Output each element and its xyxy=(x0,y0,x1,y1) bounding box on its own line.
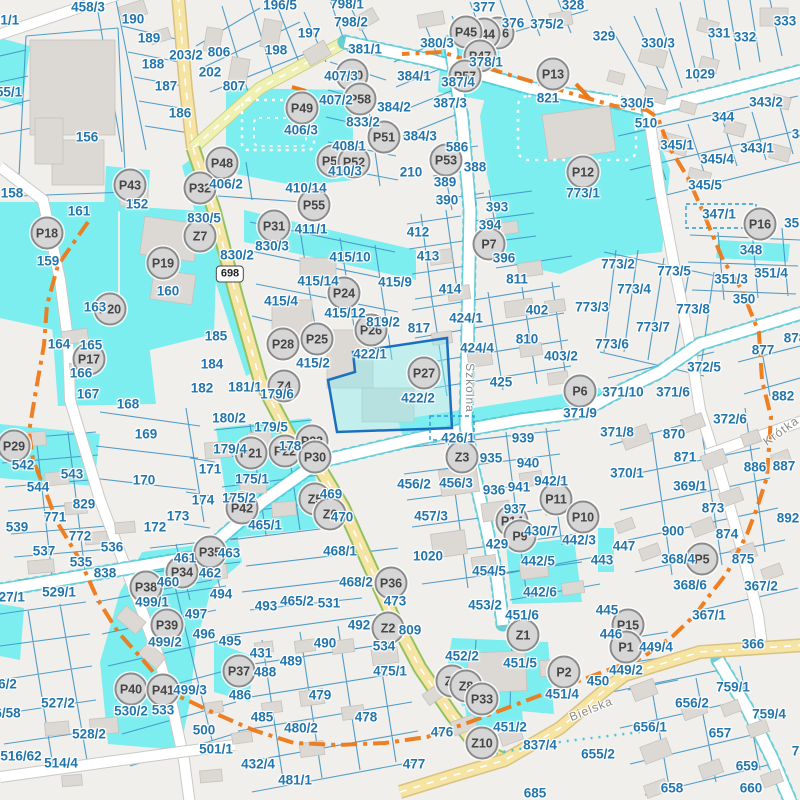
map-marker-p29[interactable]: P29 xyxy=(0,430,31,463)
marker-layer: P46P44P45P47P57P50P49P58P51P56P54P52P53P… xyxy=(0,0,800,800)
map-marker-p32[interactable]: P32 xyxy=(184,172,217,205)
map-marker-p49[interactable]: P49 xyxy=(286,92,319,125)
map-marker-p57[interactable]: P57 xyxy=(449,60,482,93)
map-marker-p51[interactable]: P51 xyxy=(368,121,401,154)
map-marker-p16[interactable]: P16 xyxy=(744,208,777,241)
map-viewport[interactable]: P46P44P45P47P57P50P49P58P51P56P54P52P53P… xyxy=(0,0,800,800)
map-marker-z10[interactable]: Z10 xyxy=(466,727,499,760)
map-marker-p13[interactable]: P13 xyxy=(537,58,570,91)
map-marker-p38[interactable]: P38 xyxy=(130,571,163,604)
map-marker-p1[interactable]: P1 xyxy=(610,631,643,664)
map-marker-z1[interactable]: Z1 xyxy=(507,619,540,652)
map-marker-z2[interactable]: Z2 xyxy=(372,612,405,645)
map-marker-p7[interactable]: P7 xyxy=(473,228,506,261)
map-marker-p43[interactable]: P43 xyxy=(114,169,147,202)
map-marker-p25[interactable]: P25 xyxy=(301,323,334,356)
map-marker-p34[interactable]: P34 xyxy=(166,556,199,589)
map-marker-p58[interactable]: P58 xyxy=(344,83,377,116)
map-marker-p33[interactable]: P33 xyxy=(466,683,499,716)
map-marker-p52[interactable]: P52 xyxy=(338,146,371,179)
route-shield: 698 xyxy=(216,266,244,283)
map-marker-z6[interactable]: Z6 xyxy=(314,498,347,531)
map-marker-p2[interactable]: P2 xyxy=(548,656,581,689)
map-marker-p39[interactable]: P39 xyxy=(151,609,184,642)
map-marker-p35[interactable]: P35 xyxy=(194,536,227,569)
map-marker-p19[interactable]: P19 xyxy=(147,247,180,280)
map-marker-p10[interactable]: P10 xyxy=(567,501,600,534)
map-marker-z3[interactable]: Z3 xyxy=(446,441,479,474)
map-marker-z7[interactable]: Z7 xyxy=(184,220,217,253)
map-marker-p37[interactable]: P37 xyxy=(223,655,256,688)
map-marker-z4[interactable]: Z4 xyxy=(268,370,301,403)
map-marker-p20[interactable]: P20 xyxy=(94,293,127,326)
map-marker-p18[interactable]: P18 xyxy=(31,217,64,250)
map-marker-p55[interactable]: P55 xyxy=(298,189,331,222)
map-marker-p9[interactable]: P9 xyxy=(504,520,537,553)
map-marker-p53[interactable]: P53 xyxy=(430,144,463,177)
map-marker-p41[interactable]: P41 xyxy=(147,674,180,707)
map-marker-p5[interactable]: P5 xyxy=(686,543,719,576)
map-marker-p28[interactable]: P28 xyxy=(267,328,300,361)
map-marker-p40[interactable]: P40 xyxy=(115,673,148,706)
map-marker-p36[interactable]: P36 xyxy=(375,567,408,600)
map-marker-p27[interactable]: P27 xyxy=(408,357,441,390)
map-marker-p12[interactable]: P12 xyxy=(567,156,600,189)
map-marker-p30[interactable]: P30 xyxy=(299,441,332,474)
map-marker-p42[interactable]: P42 xyxy=(226,492,259,525)
map-marker-p24[interactable]: P24 xyxy=(328,277,361,310)
map-marker-p17[interactable]: P17 xyxy=(73,343,106,376)
map-marker-p6[interactable]: P6 xyxy=(564,375,597,408)
map-marker-p31[interactable]: P31 xyxy=(258,210,291,243)
map-marker-p21[interactable]: P21 xyxy=(235,437,268,470)
map-marker-p26[interactable]: P26 xyxy=(355,314,388,347)
